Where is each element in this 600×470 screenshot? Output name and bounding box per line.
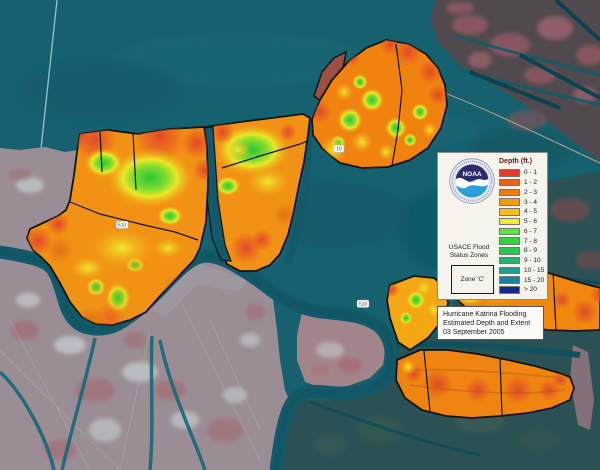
road-shield-510: 510 xyxy=(357,300,369,308)
noaa-logo-text: NOAA xyxy=(462,171,481,178)
legend-swatch xyxy=(499,208,520,216)
legend-item-label: 9 - 10 xyxy=(524,257,541,264)
legend-item: 2 - 3 xyxy=(499,188,544,198)
legend-depth-title: Depth (ft.) xyxy=(499,158,532,165)
zone-c-label: Zone 'C' xyxy=(461,276,485,283)
legend-item-label: 5 - 6 xyxy=(524,218,537,225)
legend-swatch xyxy=(499,286,520,294)
legend-swatch xyxy=(499,228,520,236)
zone-c-box: Zone 'C' xyxy=(451,265,494,294)
legend-item-label: 7 - 8 xyxy=(524,238,537,245)
map-title-line1: Hurricane Katrina Flooding xyxy=(443,310,543,319)
legend-item: 8 - 9 xyxy=(499,246,544,256)
legend-item-label: > 20 xyxy=(524,286,537,293)
legend-swatch xyxy=(499,179,520,187)
svg-text:510: 510 xyxy=(359,302,368,308)
legend-item: 15 - 20 xyxy=(499,275,544,285)
legend-swatch xyxy=(499,247,520,255)
legend-item-label: 15 - 20 xyxy=(524,277,544,284)
legend-swatch xyxy=(499,218,520,226)
legend-item: 5 - 6 xyxy=(499,217,544,227)
svg-text:610: 610 xyxy=(118,223,127,229)
legend-item: 3 - 4 xyxy=(499,197,544,207)
map-title-box: Hurricane Katrina Flooding Estimated Dep… xyxy=(437,306,544,340)
legend-swatch xyxy=(499,257,520,265)
road-shield-10: 10 xyxy=(334,145,344,153)
legend-item-label: 1 - 2 xyxy=(524,179,537,186)
legend-swatch xyxy=(499,237,520,245)
legend-item-label: 6 - 7 xyxy=(524,228,537,235)
legend-item: 4 - 5 xyxy=(499,207,544,217)
legend-swatch xyxy=(499,267,520,275)
legend-item: 0 - 1 xyxy=(499,168,544,178)
legend-item: 1 - 2 xyxy=(499,178,544,188)
legend-item: 10 - 15 xyxy=(499,266,544,276)
legend-swatch xyxy=(499,276,520,284)
legend-swatch xyxy=(499,189,520,197)
svg-text:10: 10 xyxy=(336,147,342,153)
legend-item-label: 8 - 9 xyxy=(524,247,537,254)
legend-item: 6 - 7 xyxy=(499,227,544,237)
usace-flood-zones-label: USACE Flood Status Zones xyxy=(440,244,498,260)
legend-item-label: 0 - 1 xyxy=(524,169,537,176)
map-title-line3: 03 September 2005 xyxy=(443,328,543,337)
legend-items: 0 - 11 - 22 - 33 - 44 - 55 - 66 - 77 - 8… xyxy=(499,168,544,295)
legend-item-label: 4 - 5 xyxy=(524,208,537,215)
legend-item: 9 - 10 xyxy=(499,256,544,266)
map-legend-panel: NOAA Depth (ft.) 0 - 11 - 22 - 33 - 44 -… xyxy=(437,152,548,300)
legend-item: 7 - 8 xyxy=(499,236,544,246)
legend-item-label: 10 - 15 xyxy=(524,267,544,274)
noaa-logo: NOAA xyxy=(449,158,495,209)
legend-item-label: 2 - 3 xyxy=(524,189,537,196)
legend-item: > 20 xyxy=(499,285,544,295)
road-shield-610: 610 xyxy=(116,221,128,229)
legend-swatch xyxy=(499,198,520,206)
legend-swatch xyxy=(499,169,520,177)
map-title-line2: Estimated Depth and Extent xyxy=(443,319,543,328)
legend-item-label: 3 - 4 xyxy=(524,199,537,206)
